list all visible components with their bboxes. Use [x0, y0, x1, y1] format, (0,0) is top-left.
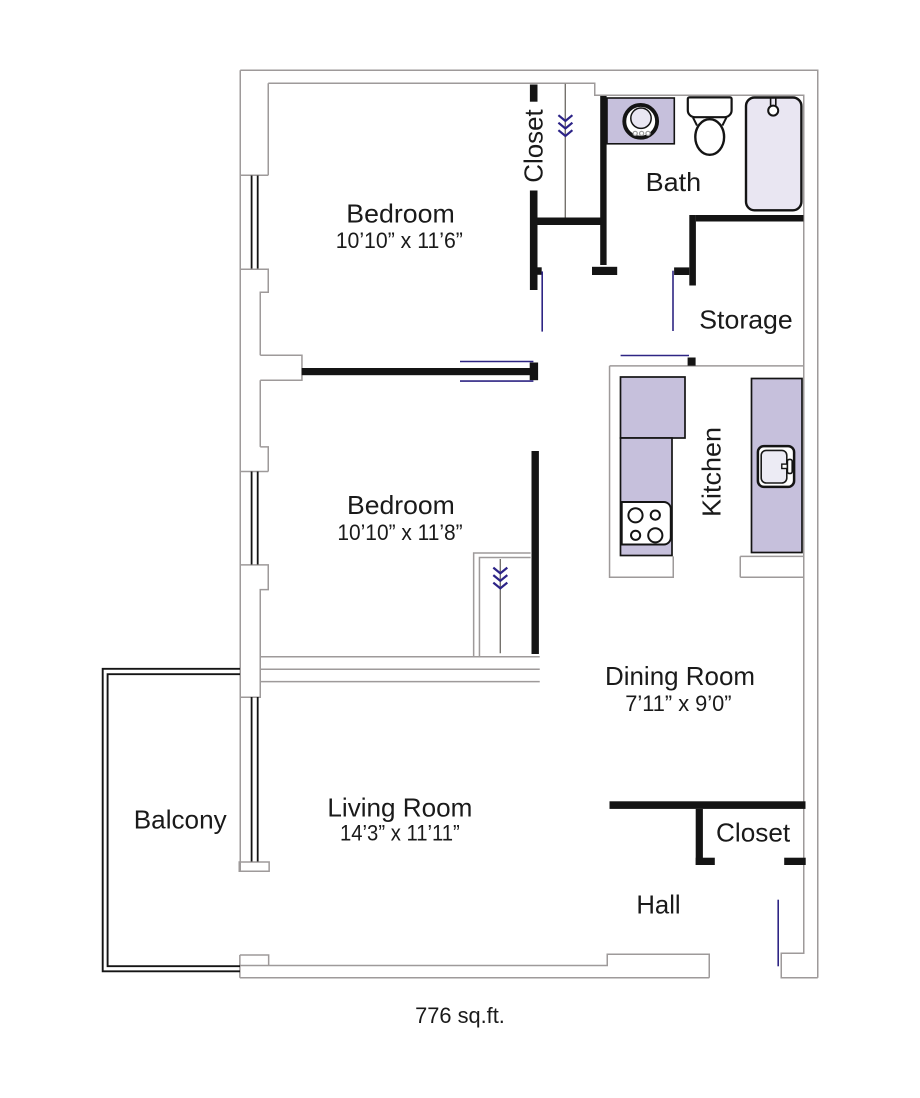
- svg-text:Hall: Hall: [636, 890, 680, 920]
- svg-text:776 sq.ft.: 776 sq.ft.: [415, 1003, 505, 1028]
- svg-text:Balcony: Balcony: [134, 804, 227, 834]
- svg-text:Bath: Bath: [646, 167, 702, 197]
- svg-text:Dining Room: Dining Room: [605, 661, 755, 691]
- svg-text:Closet: Closet: [716, 818, 791, 848]
- svg-text:14’3” x 11’11”: 14’3” x 11’11”: [340, 821, 460, 846]
- svg-text:10’10” x 11’8”: 10’10” x 11’8”: [337, 520, 462, 545]
- svg-text:7’11” x 9’0”: 7’11” x 9’0”: [625, 691, 731, 716]
- svg-text:Closet: Closet: [519, 108, 549, 182]
- svg-text:Kitchen: Kitchen: [697, 427, 727, 517]
- svg-text:Bedroom: Bedroom: [346, 199, 455, 229]
- svg-text:Living Room: Living Room: [327, 793, 472, 823]
- svg-text:Bedroom: Bedroom: [347, 490, 455, 520]
- svg-text:Storage: Storage: [699, 305, 793, 335]
- svg-text:10’10” x 11’6”: 10’10” x 11’6”: [336, 228, 463, 253]
